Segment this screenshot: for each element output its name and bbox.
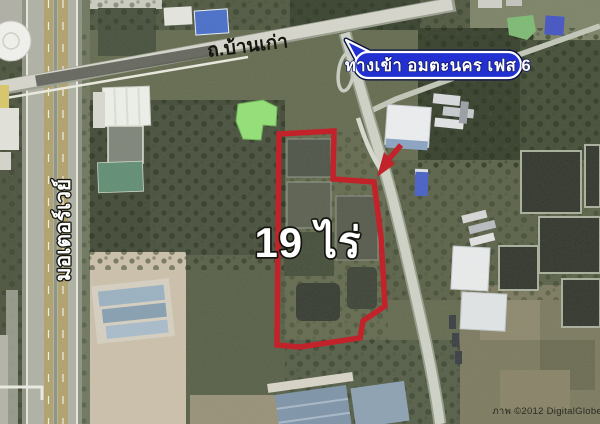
satellite-scene: ทางเข้า อมตะนคร เฟส 6 ถ.บ้านเก่า มอเตอร์…	[0, 0, 600, 424]
credit-label: ภาพ ©2012 DigitalGlobe	[492, 406, 600, 417]
motorway-label: มอเตอร์เวย์	[51, 179, 75, 281]
plot-area-label: 19 ไร่	[254, 218, 361, 266]
entrance-callout-label: ทางเข้า อมตะนคร เฟส 6	[345, 57, 531, 75]
satellite-map-image: ทางเข้า อมตะนคร เฟส 6 ถ.บ้านเก่า มอเตอร์…	[0, 0, 600, 424]
